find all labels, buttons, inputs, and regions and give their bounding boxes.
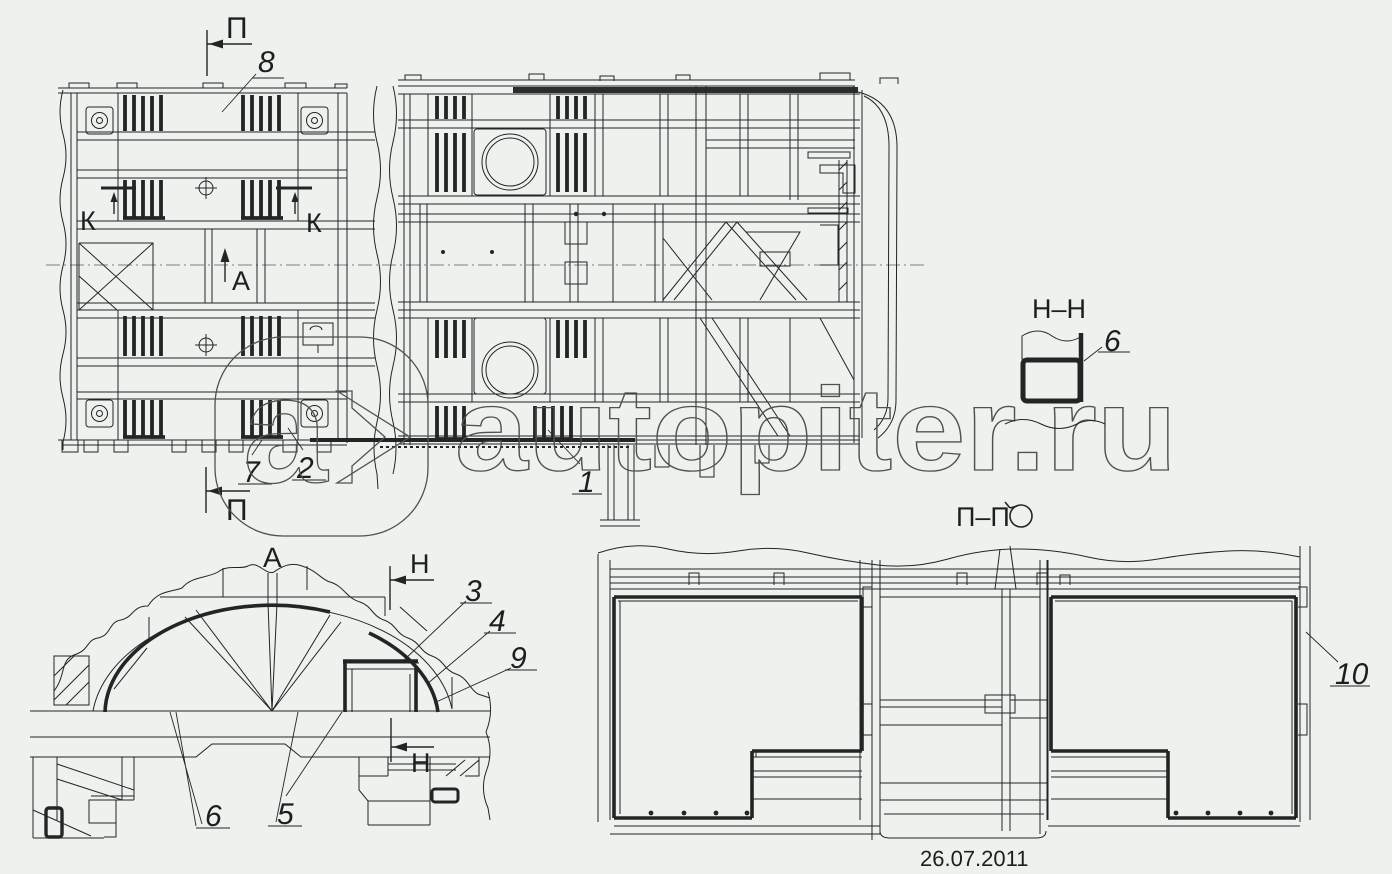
svg-text:К: К	[306, 208, 322, 238]
svg-text:П: П	[226, 12, 248, 45]
svg-text:26.07.2011: 26.07.2011	[920, 846, 1028, 871]
svg-text:Н: Н	[410, 549, 430, 579]
svg-text:Н: Н	[411, 748, 431, 778]
svg-text:8: 8	[258, 46, 275, 79]
svg-text:П–П: П–П	[956, 502, 1010, 532]
svg-text:a: a	[243, 345, 329, 515]
svg-text:autopiter.ru: autopiter.ru	[455, 364, 1177, 496]
svg-text:Н–Н: Н–Н	[1032, 294, 1086, 324]
svg-text:6: 6	[1104, 325, 1121, 358]
svg-text:К: К	[80, 206, 96, 236]
svg-text:А: А	[232, 266, 250, 296]
